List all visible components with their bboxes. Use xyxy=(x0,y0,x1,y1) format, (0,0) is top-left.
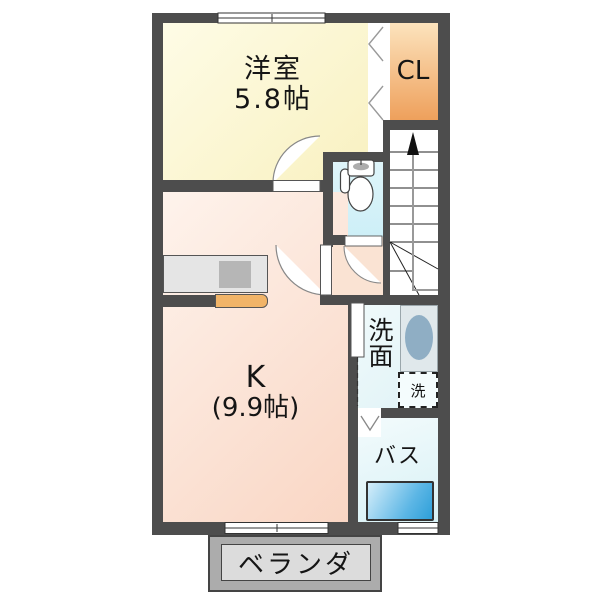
veranda-label: ベランダ xyxy=(238,544,354,581)
washroom-label: 洗面 xyxy=(366,317,392,369)
kitchen-stove xyxy=(219,261,251,288)
wall-counter-stub xyxy=(152,295,215,307)
wall-top xyxy=(152,13,450,23)
wall-right xyxy=(438,13,450,535)
closet-label: CL xyxy=(390,56,436,86)
wall-toilet-top xyxy=(323,152,390,162)
wall-washroom-bath xyxy=(380,408,438,418)
washroom-sink-basin xyxy=(405,315,433,360)
wall-toilet-left xyxy=(323,152,333,247)
washing-machine-label: 洗 xyxy=(410,380,425,401)
kitchen-size: (9.9帖) xyxy=(163,394,348,422)
floorplan-canvas: 洗 ベランダ xyxy=(0,0,600,600)
kitchen-label: K (9.9帖) xyxy=(163,362,348,422)
washing-machine-space: 洗 xyxy=(398,372,438,408)
wall-hallway-bottom xyxy=(320,295,448,305)
kitchen-counter xyxy=(163,255,268,293)
kitchen-name: K xyxy=(163,362,348,394)
kitchen-cabinet xyxy=(215,294,268,308)
wall-toilet-bottom xyxy=(323,235,347,245)
hallway-floor xyxy=(333,237,383,295)
veranda-inner: ベランダ xyxy=(221,544,371,581)
staircase-floor xyxy=(390,130,438,295)
wall-western-room-bottom-left xyxy=(152,180,273,192)
wall-closet-bottom xyxy=(383,120,438,130)
western-room-label: 洋室 5.8帖 xyxy=(163,55,383,115)
kitchen-floor xyxy=(163,192,348,522)
wall-left xyxy=(152,13,163,535)
western-room-name: 洋室 xyxy=(244,54,302,85)
bath-label: バス xyxy=(358,438,438,470)
wall-bottom xyxy=(152,522,450,535)
wall-stairs-left xyxy=(383,120,390,305)
wall-kitchen-washroom xyxy=(348,295,358,522)
bathtub xyxy=(366,481,434,521)
western-room-size: 5.8帖 xyxy=(234,84,312,115)
